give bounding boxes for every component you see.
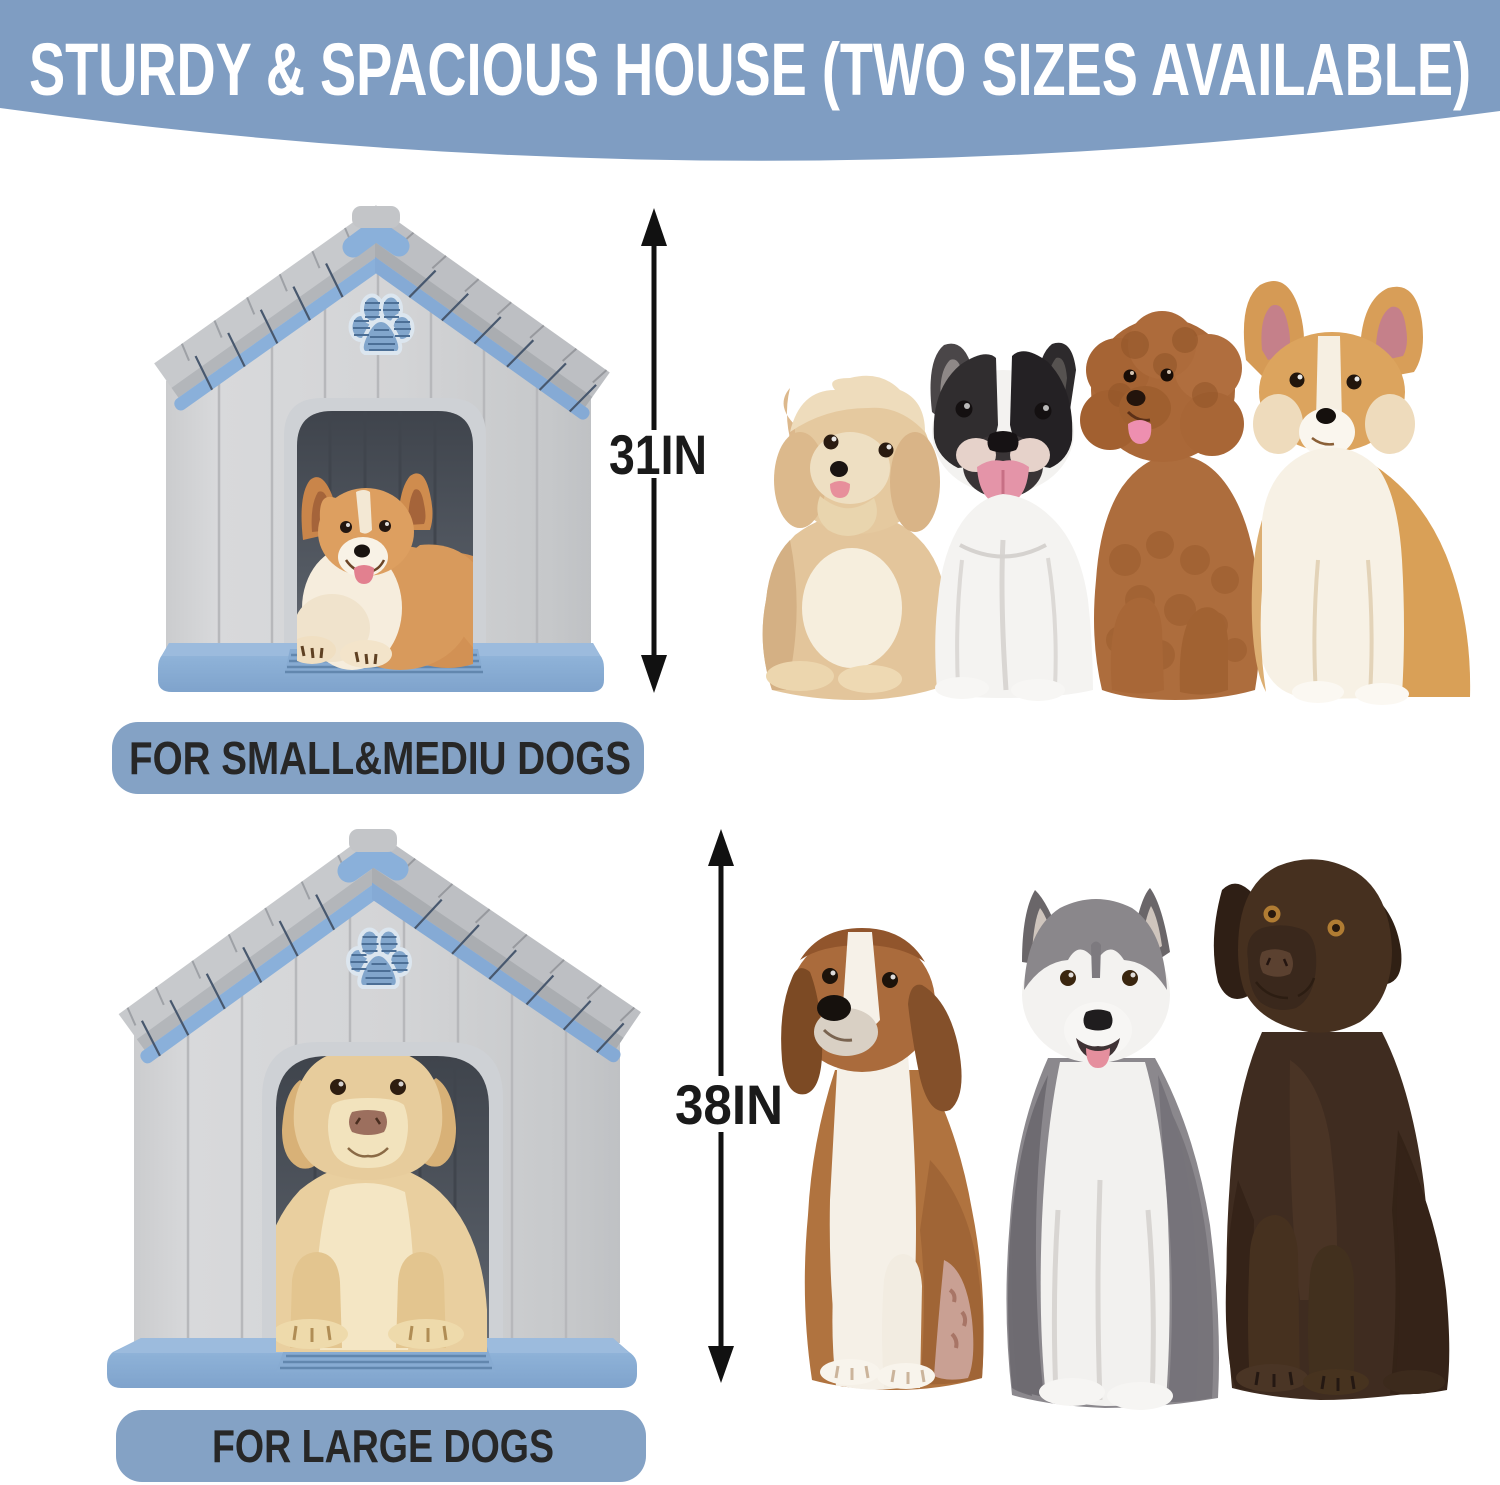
svg-text:FOR SMALL&MEDIU DOGS: FOR SMALL&MEDIU DOGS <box>129 732 631 784</box>
svg-text:FOR LARGE DOGS: FOR LARGE DOGS <box>212 1420 554 1472</box>
svg-text:38IN: 38IN <box>675 1073 783 1136</box>
svg-text:STURDY & SPACIOUS HOUSE (TWO S: STURDY & SPACIOUS HOUSE (TWO SIZES AVAIL… <box>29 28 1471 111</box>
svg-text:31IN: 31IN <box>609 423 707 486</box>
